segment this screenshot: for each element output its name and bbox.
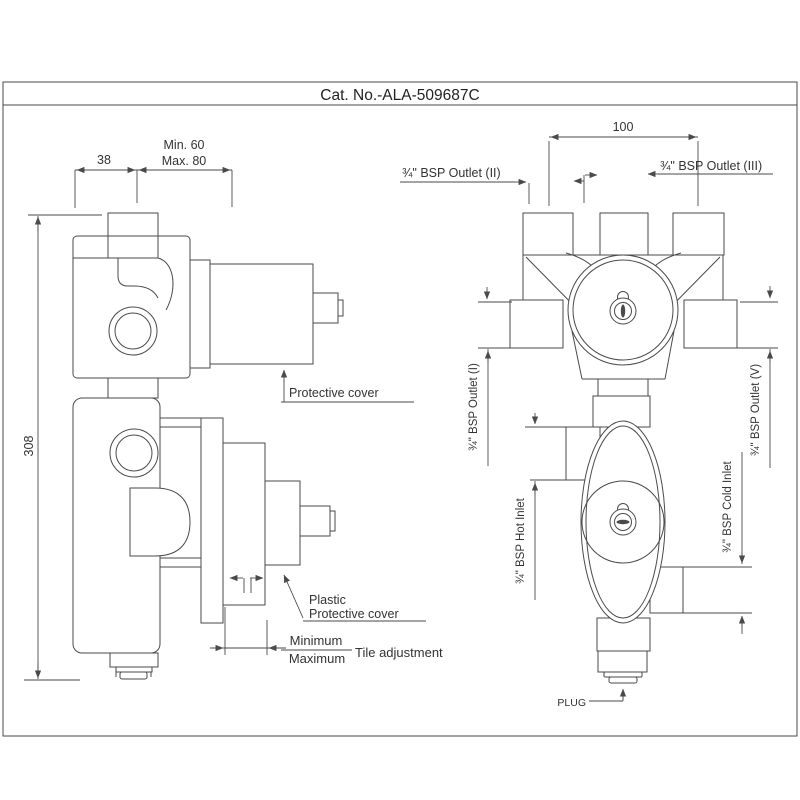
dim-top: 38 Min. 60 Max. 80 bbox=[75, 138, 232, 208]
cartridge-connector-bottom bbox=[160, 558, 201, 567]
plug-nut-left bbox=[120, 672, 147, 679]
dim-38-label: 38 bbox=[97, 153, 111, 167]
upper-cover bbox=[210, 264, 313, 364]
frame-border bbox=[3, 82, 797, 736]
outlet-3-pipe bbox=[673, 213, 724, 255]
plug-label: PLUG bbox=[557, 697, 586, 709]
lower-stub bbox=[300, 506, 330, 536]
lever-screw-slot bbox=[617, 520, 630, 524]
outlet-1-stub bbox=[510, 300, 563, 348]
outlet-5-stub bbox=[684, 300, 737, 348]
base-flange bbox=[110, 653, 158, 667]
outlet-5-label: ¾" BSP Outlet (V) bbox=[750, 364, 762, 456]
hook-detail bbox=[118, 258, 134, 286]
minimum-label: Minimum bbox=[290, 633, 343, 648]
drawing-page: Cat. No.-ALA-509687C bbox=[0, 0, 800, 800]
plug-nut bbox=[609, 677, 637, 683]
lower-stub-tip bbox=[330, 511, 335, 531]
dim-min60-label: Min. 60 bbox=[164, 138, 205, 152]
side-view: 308 38 Min. 60 Max. 80 Protective cover bbox=[22, 138, 443, 680]
callout-plastic-cover: Plastic Protective cover bbox=[284, 575, 426, 621]
catalog-number: Cat. No.-ALA-509687C bbox=[320, 87, 479, 104]
protective-cover-label: Protective cover bbox=[289, 386, 379, 400]
dim-100-label: 100 bbox=[613, 120, 634, 134]
callout-outlet-5: ¾" BSP Outlet (V) bbox=[737, 286, 778, 468]
hot-inlet-label: ¾" BSP Hot Inlet bbox=[515, 497, 527, 583]
plug-collar-left bbox=[116, 667, 152, 672]
upper-stub bbox=[313, 293, 338, 323]
neck bbox=[108, 378, 158, 398]
mounting-plate bbox=[201, 418, 223, 623]
technical-drawing: Cat. No.-ALA-509687C bbox=[0, 0, 800, 800]
maximum-label: Maximum bbox=[289, 651, 345, 666]
cold-inlet-label: ¾" BSP Cold Inlet bbox=[722, 460, 734, 552]
side-view-body bbox=[73, 213, 343, 679]
plastic-cover-label-2: Protective cover bbox=[309, 607, 399, 621]
outlet-2-pipe bbox=[523, 213, 573, 255]
dim-tile-adjustment: Minimum Maximum Tile adjustment bbox=[210, 578, 443, 666]
cartridge-connector-top bbox=[160, 418, 201, 427]
callout-outlet-1: ¾" BSP Outlet (I) bbox=[468, 287, 512, 466]
plug-flange bbox=[604, 672, 642, 677]
callout-outlet-3: ¾" BSP Outlet (III) bbox=[648, 159, 773, 174]
front-view-body bbox=[510, 213, 737, 683]
tile-adjustment-label: Tile adjustment bbox=[355, 645, 443, 660]
outlet-2-label: ¾" BSP Outlet (II) bbox=[402, 166, 501, 180]
drawing-frame: Cat. No.-ALA-509687C bbox=[3, 82, 797, 736]
plastic-cover-label-1: Plastic bbox=[309, 593, 346, 607]
front-view: 100 ¾" BSP Outlet (II) ¾" BSP Outlet (II… bbox=[400, 120, 778, 709]
outlet-top-center-pipe bbox=[600, 213, 648, 255]
lower-port-outer bbox=[110, 429, 158, 477]
callout-plug: PLUG bbox=[557, 689, 623, 709]
callout-outlet-2: ¾" BSP Outlet (II) bbox=[400, 166, 597, 204]
outlet-1-label: ¾" BSP Outlet (I) bbox=[468, 363, 480, 451]
knob-screw-slot bbox=[621, 305, 625, 318]
outlet-3-label: ¾" BSP Outlet (III) bbox=[660, 159, 762, 173]
dim-max80-label: Max. 80 bbox=[162, 154, 207, 168]
side-bump bbox=[130, 488, 190, 556]
dim-308: 308 bbox=[22, 215, 102, 680]
callout-protective-cover: Protective cover bbox=[281, 370, 414, 402]
callout-cold-inlet: ¾" BSP Cold Inlet bbox=[683, 452, 752, 634]
swoosh-outer bbox=[158, 258, 173, 310]
mid-neck bbox=[598, 379, 648, 396]
upper-stub-tip bbox=[338, 300, 343, 316]
callout-hot-inlet: ¾" BSP Hot Inlet bbox=[515, 413, 566, 600]
plastic-cover bbox=[265, 481, 300, 565]
swoosh-inner bbox=[134, 286, 158, 298]
upper-port-outer bbox=[109, 307, 157, 355]
dim-308-label: 308 bbox=[22, 436, 36, 457]
upper-cover-step bbox=[190, 260, 210, 368]
plug-body bbox=[598, 651, 647, 672]
